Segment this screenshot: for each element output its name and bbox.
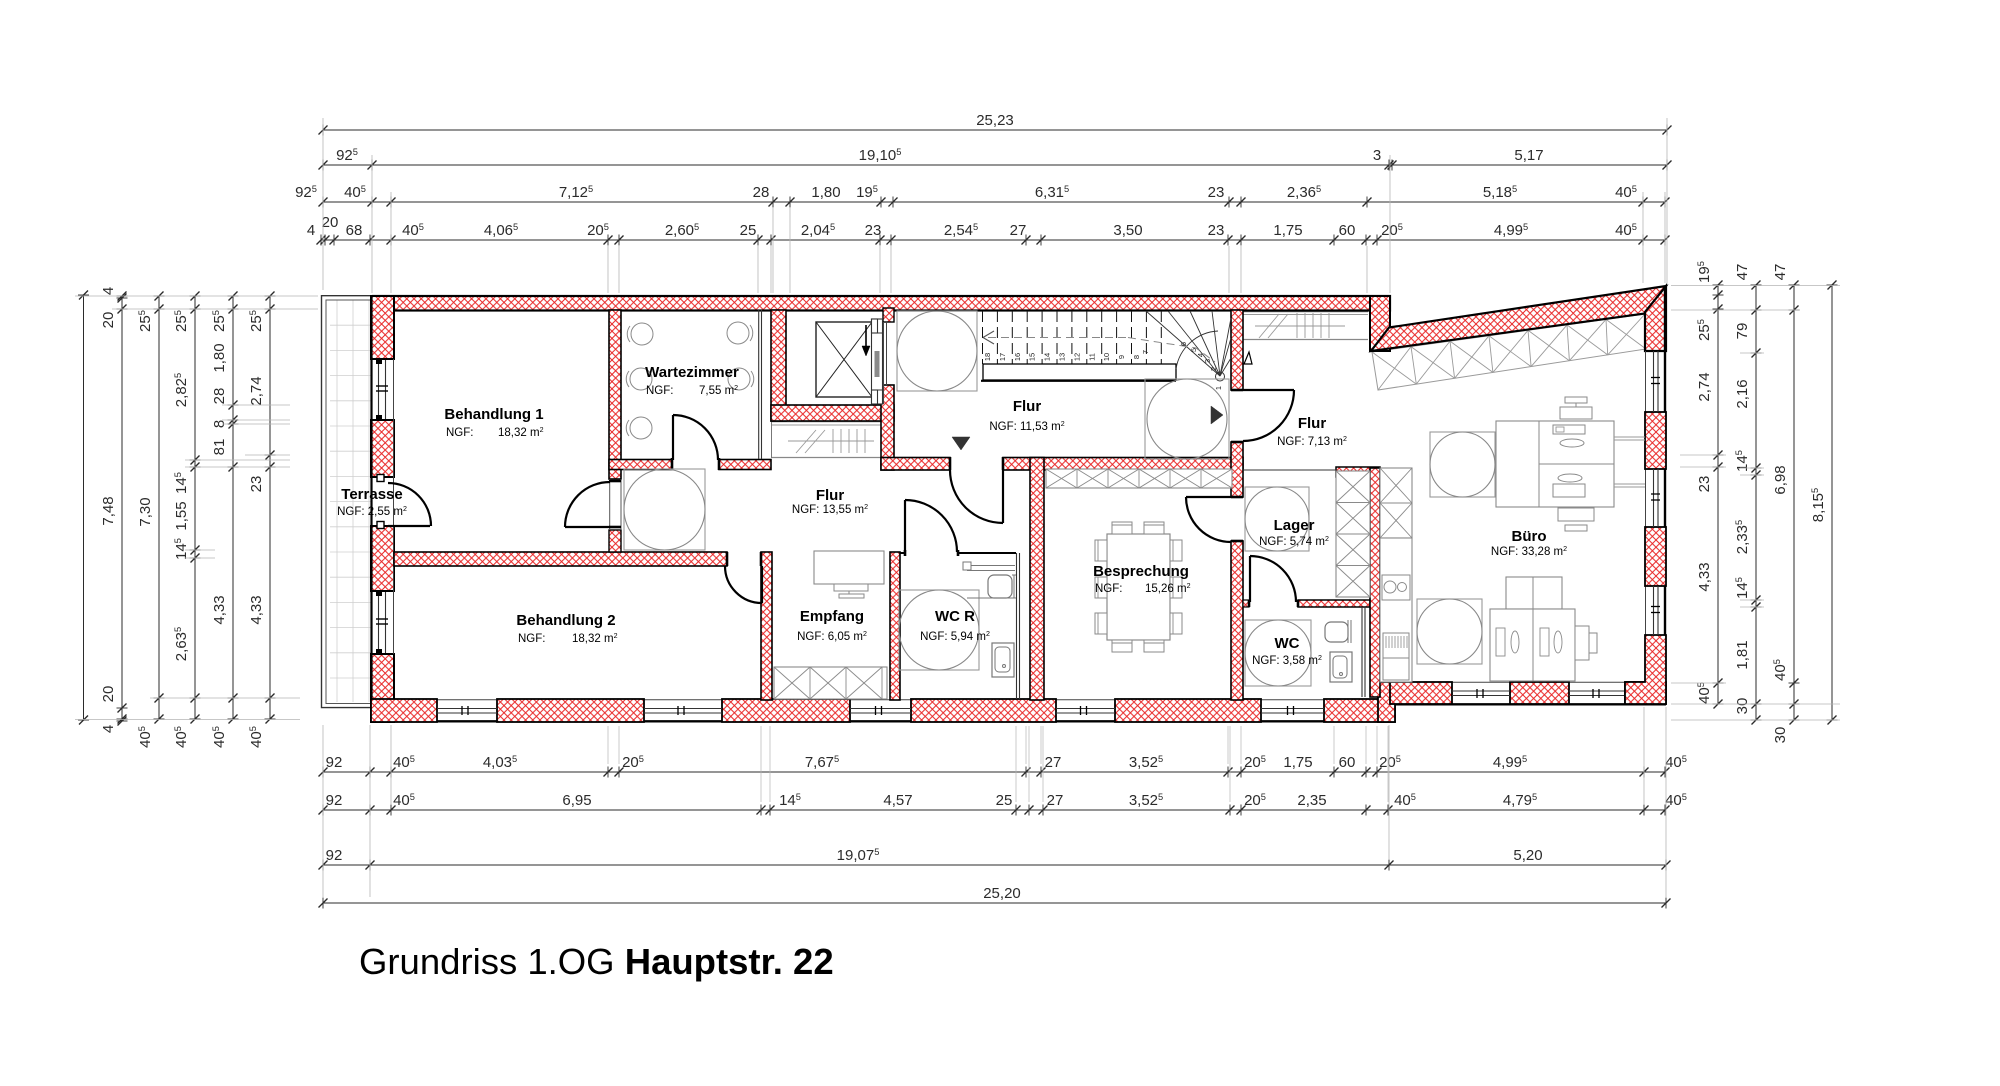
svg-text:23: 23	[1696, 476, 1713, 493]
svg-text:27: 27	[1010, 222, 1027, 239]
svg-text:4: 4	[307, 222, 315, 239]
svg-text:25: 25	[996, 792, 1013, 809]
svg-text:7,30: 7,30	[137, 497, 154, 526]
svg-text:12: 12	[1072, 353, 1081, 361]
svg-text:6,98: 6,98	[1772, 465, 1789, 494]
svg-text:1,81: 1,81	[1734, 640, 1751, 669]
svg-text:79: 79	[1734, 323, 1751, 340]
svg-text:13: 13	[1058, 353, 1067, 361]
svg-text:6,95: 6,95	[562, 792, 591, 809]
svg-text:4: 4	[100, 725, 117, 733]
svg-text:7,55 m2: 7,55 m2	[699, 384, 738, 397]
svg-text:92: 92	[326, 754, 343, 771]
svg-text:3: 3	[1203, 359, 1212, 363]
svg-text:15,26 m2: 15,26 m2	[1145, 582, 1191, 595]
svg-text:Flur: Flur	[816, 487, 844, 504]
svg-text:4,57: 4,57	[883, 792, 912, 809]
svg-text:10: 10	[1102, 353, 1111, 361]
svg-text:NGF: 13,55 m2: NGF: 13,55 m2	[792, 503, 868, 516]
svg-text:20: 20	[322, 214, 339, 231]
svg-text:18,32 m2: 18,32 m2	[572, 632, 618, 645]
svg-text:4,33: 4,33	[211, 595, 228, 624]
svg-text:23: 23	[865, 222, 882, 239]
svg-text:5: 5	[1189, 348, 1198, 352]
svg-text:81: 81	[211, 439, 228, 456]
svg-text:1: 1	[1214, 386, 1223, 390]
svg-text:1,55: 1,55	[173, 501, 190, 530]
svg-text:15: 15	[1028, 353, 1037, 361]
svg-text:2,16: 2,16	[1734, 379, 1751, 408]
svg-text:3,50: 3,50	[1113, 222, 1142, 239]
svg-text:7: 7	[1141, 350, 1150, 354]
svg-text:60: 60	[1339, 222, 1356, 239]
svg-text:NGF:: NGF:	[518, 633, 545, 645]
svg-text:Behandlung 1: Behandlung 1	[444, 406, 543, 423]
svg-text:1,75: 1,75	[1273, 222, 1302, 239]
svg-text:2,74: 2,74	[1696, 372, 1713, 401]
svg-text:25: 25	[740, 222, 757, 239]
svg-text:NGF:: NGF:	[446, 427, 473, 439]
svg-text:20: 20	[100, 312, 117, 329]
svg-text:30: 30	[1734, 698, 1751, 715]
svg-text:16: 16	[1013, 353, 1022, 361]
svg-text:NGF: 3,58 m2: NGF: 3,58 m2	[1252, 654, 1322, 667]
svg-text:17: 17	[998, 353, 1007, 361]
svg-text:4: 4	[100, 287, 117, 295]
svg-text:27: 27	[1045, 754, 1062, 771]
svg-text:3: 3	[1373, 147, 1381, 164]
svg-text:Terrasse: Terrasse	[341, 486, 402, 503]
svg-text:NGF: 5,74 m2: NGF: 5,74 m2	[1259, 535, 1329, 548]
svg-text:NGF: 11,53 m2: NGF: 11,53 m2	[989, 420, 1064, 433]
svg-text:60: 60	[1339, 754, 1356, 771]
svg-text:19,105: 19,105	[859, 147, 902, 164]
svg-text:Büro: Büro	[1512, 528, 1547, 545]
svg-text:25,20: 25,20	[983, 885, 1021, 902]
svg-text:4: 4	[1196, 353, 1205, 357]
svg-text:WC R: WC R	[935, 608, 975, 625]
svg-text:7,48: 7,48	[100, 496, 117, 525]
svg-text:WC: WC	[1275, 635, 1300, 652]
svg-text:5,20: 5,20	[1513, 847, 1542, 864]
svg-text:6: 6	[1179, 342, 1188, 346]
svg-text:19,075: 19,075	[837, 847, 880, 864]
svg-text:27: 27	[1047, 792, 1064, 809]
svg-text:18,32 m2: 18,32 m2	[498, 426, 544, 439]
svg-text:Empfang: Empfang	[800, 608, 864, 625]
svg-text:4,33: 4,33	[248, 595, 265, 624]
svg-text:NGF: 7,13 m2: NGF: 7,13 m2	[1277, 435, 1347, 448]
svg-text:18: 18	[983, 353, 992, 361]
svg-text:2,35: 2,35	[1297, 792, 1326, 809]
svg-text:NGF:: NGF:	[1095, 583, 1122, 595]
svg-text:30: 30	[1772, 727, 1789, 744]
svg-text:2: 2	[1209, 367, 1218, 371]
svg-text:Besprechung: Besprechung	[1093, 563, 1189, 580]
svg-text:Flur: Flur	[1298, 415, 1326, 432]
svg-text:47: 47	[1734, 264, 1751, 281]
svg-text:NGF: 33,28 m2: NGF: 33,28 m2	[1491, 545, 1567, 558]
svg-text:5,17: 5,17	[1514, 147, 1543, 164]
svg-text:Flur: Flur	[1013, 398, 1041, 415]
svg-text:NGF:: NGF:	[646, 385, 673, 397]
svg-text:1,80: 1,80	[211, 343, 228, 372]
svg-text:47: 47	[1772, 264, 1789, 281]
svg-text:NGF: 6,05 m2: NGF: 6,05 m2	[797, 630, 867, 643]
svg-text:Behandlung 2: Behandlung 2	[516, 612, 615, 629]
svg-text:Wartezimmer: Wartezimmer	[645, 364, 739, 381]
svg-text:1,80: 1,80	[811, 184, 840, 201]
svg-text:9: 9	[1117, 355, 1126, 359]
svg-text:Grundriss 1.OG Hauptstr. 22: Grundriss 1.OG Hauptstr. 22	[359, 941, 834, 982]
svg-text:11: 11	[1087, 353, 1096, 361]
svg-text:23: 23	[1208, 222, 1225, 239]
svg-text:25,23: 25,23	[976, 112, 1014, 129]
svg-text:Lager: Lager	[1274, 517, 1315, 534]
svg-text:28: 28	[211, 388, 228, 405]
svg-text:NGF: 2,55 m2: NGF: 2,55 m2	[337, 505, 407, 518]
svg-text:NGF: 5,94 m2: NGF: 5,94 m2	[920, 630, 990, 643]
svg-text:23: 23	[1208, 184, 1225, 201]
svg-text:4,33: 4,33	[1696, 562, 1713, 591]
svg-text:8: 8	[1132, 355, 1141, 359]
svg-text:2,74: 2,74	[248, 376, 265, 405]
svg-text:1,75: 1,75	[1283, 754, 1312, 771]
svg-text:68: 68	[346, 222, 363, 239]
svg-text:92: 92	[326, 792, 343, 809]
svg-text:14: 14	[1043, 353, 1052, 361]
svg-text:28: 28	[753, 184, 770, 201]
svg-text:92: 92	[326, 847, 343, 864]
svg-text:23: 23	[248, 476, 265, 493]
svg-text:20: 20	[100, 686, 117, 703]
